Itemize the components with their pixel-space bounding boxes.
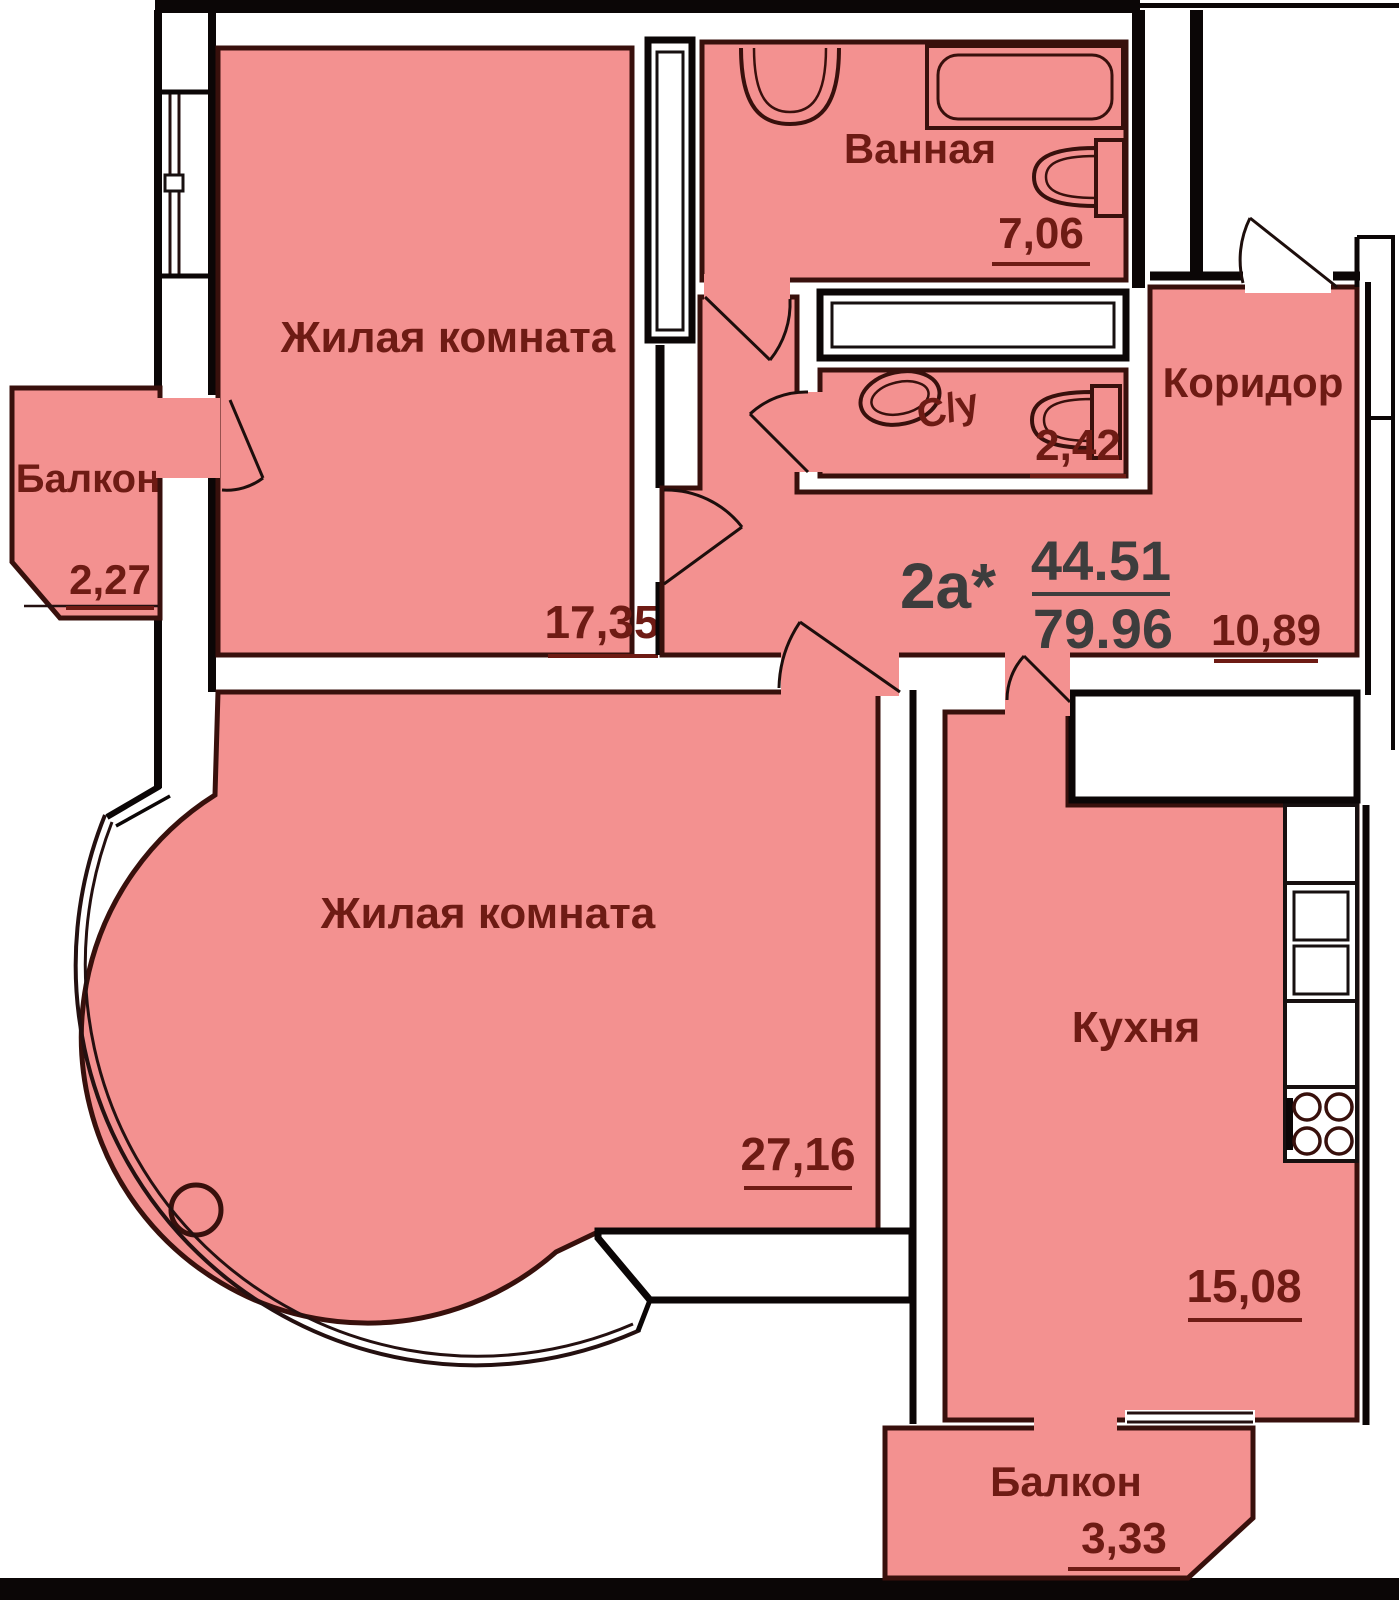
living-area-value: 44.51 (1031, 529, 1171, 592)
entrance-opening (1245, 279, 1331, 293)
bay-bottom-connector (638, 1300, 650, 1331)
kitchen-sink-icon (1294, 892, 1348, 940)
entrance (1132, 10, 1360, 293)
kitchen-area: 15,08 (1186, 1260, 1301, 1312)
wc-area: 2,42 (1035, 421, 1121, 470)
stove-icon (1285, 1087, 1357, 1161)
door-balcony-bottom (1034, 1408, 1117, 1434)
kitchen-label: Кухня (1072, 1003, 1201, 1052)
vent-shaft-horizontal-inner (832, 303, 1114, 347)
balcony-bottom-label: Балкон (990, 1458, 1142, 1505)
kitchen-counter-icon (1285, 805, 1357, 1161)
unit-label: 2а* (900, 550, 996, 622)
balcony-bottom: Балкон 3,33 (885, 1428, 1253, 1578)
bottom-photo-bar (0, 1578, 1399, 1600)
top-wall-bar (155, 0, 1140, 13)
vent-shaft-vertical-inner (657, 52, 683, 330)
room-living-1: Жилая комната 17,35 (218, 48, 660, 656)
door-kitchen (1005, 650, 1070, 716)
room-wc: С/у 2,42 (820, 364, 1126, 476)
entrance-door-leaf (1250, 218, 1337, 287)
corridor-area: 10,89 (1211, 606, 1321, 655)
room-bathroom: Ванная 7,06 (702, 42, 1126, 280)
corridor-label: Коридор (1163, 359, 1344, 406)
balcony-bottom-area: 3,33 (1081, 1514, 1167, 1563)
bathroom-label: Ванная (844, 125, 996, 172)
balcony-left: Балкон 2,27 (12, 388, 160, 618)
room-kitchen: Кухня 15,08 (945, 712, 1357, 1420)
right-outer-walls (1357, 235, 1393, 1425)
living-2-area: 27,16 (740, 1128, 855, 1180)
living-1-label: Жилая комната (280, 313, 616, 362)
floor-plan-page: Балкон 2,27 Жилая комната 17,35 (0, 0, 1399, 1600)
floor-plan-svg: Балкон 2,27 Жилая комната 17,35 (0, 0, 1399, 1600)
balcony-left-area: 2,27 (69, 556, 151, 603)
top-right-thin-wall (1135, 3, 1399, 8)
kitchen-closet-block (1072, 693, 1357, 800)
entrance-door-arc (1240, 218, 1250, 283)
balcony-left-label: Балкон (16, 457, 161, 501)
living-2-bottom-wall (598, 1231, 912, 1300)
living-2-label: Жилая комната (320, 889, 656, 938)
window-living-room-1 (158, 92, 212, 276)
window-kitchen-balcony (1125, 1410, 1255, 1426)
living-1-area: 17,35 (544, 596, 659, 648)
bathroom-area: 7,06 (998, 209, 1084, 258)
